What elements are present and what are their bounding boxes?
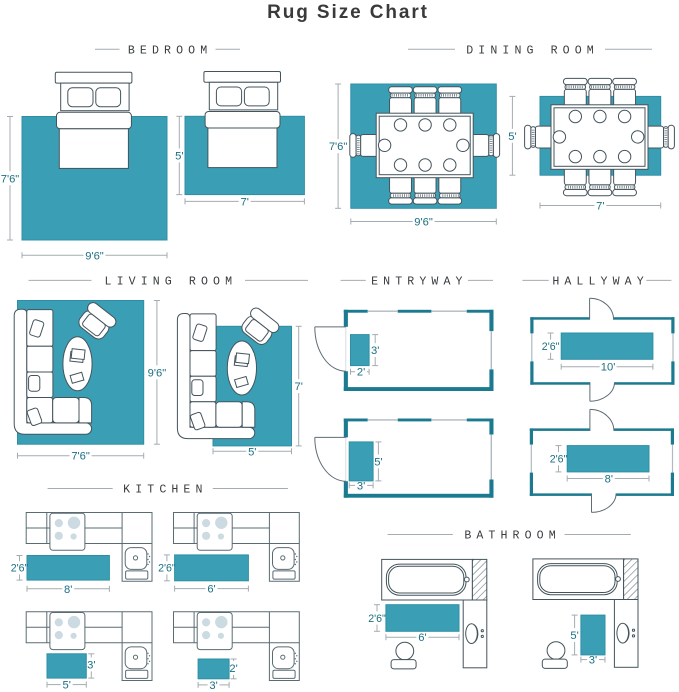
svg-text:10': 10' (601, 362, 616, 374)
svg-text:5': 5' (570, 630, 578, 642)
svg-text:KITCHEN: KITCHEN (123, 484, 207, 497)
svg-text:BEDROOM: BEDROOM (128, 44, 212, 57)
svg-text:3': 3' (87, 659, 95, 671)
svg-text:ENTRYWAY: ENTRYWAY (371, 276, 467, 289)
svg-text:5': 5' (374, 456, 382, 468)
svg-text:3': 3' (209, 680, 217, 692)
svg-text:9'6": 9'6" (148, 367, 167, 379)
svg-text:7': 7' (295, 381, 303, 393)
svg-text:Rug Size Chart: Rug Size Chart (267, 2, 429, 23)
svg-text:5': 5' (175, 150, 183, 162)
svg-text:6': 6' (418, 632, 426, 644)
svg-text:6': 6' (207, 584, 215, 596)
svg-text:2': 2' (357, 367, 365, 379)
svg-text:LIVING ROOM: LIVING ROOM (105, 276, 238, 289)
svg-text:HALLYWAY: HALLYWAY (552, 276, 648, 289)
svg-text:2': 2' (229, 663, 237, 675)
svg-text:7': 7' (241, 196, 249, 208)
svg-text:8': 8' (64, 584, 72, 596)
svg-text:9'6": 9'6" (414, 217, 433, 229)
svg-text:3': 3' (589, 655, 597, 667)
svg-text:BATHROOM: BATHROOM (464, 530, 560, 543)
svg-text:2'6": 2'6" (550, 454, 568, 466)
svg-text:2'6": 2'6" (368, 613, 386, 625)
svg-text:5': 5' (62, 680, 70, 692)
svg-text:9'6": 9'6" (85, 250, 104, 262)
svg-text:2'6": 2'6" (11, 563, 29, 575)
svg-text:5': 5' (508, 131, 516, 143)
svg-text:2'6": 2'6" (542, 341, 560, 353)
svg-text:5': 5' (248, 446, 256, 458)
svg-text:7': 7' (596, 201, 604, 213)
svg-text:8': 8' (605, 474, 613, 486)
svg-text:7'6": 7'6" (71, 451, 90, 463)
svg-text:7'6": 7'6" (329, 141, 348, 153)
svg-text:2'6": 2'6" (158, 563, 176, 575)
svg-text:7'6": 7'6" (1, 173, 20, 185)
svg-text:DINING ROOM: DINING ROOM (466, 44, 599, 57)
svg-text:3': 3' (371, 345, 379, 357)
svg-text:3': 3' (357, 480, 365, 492)
